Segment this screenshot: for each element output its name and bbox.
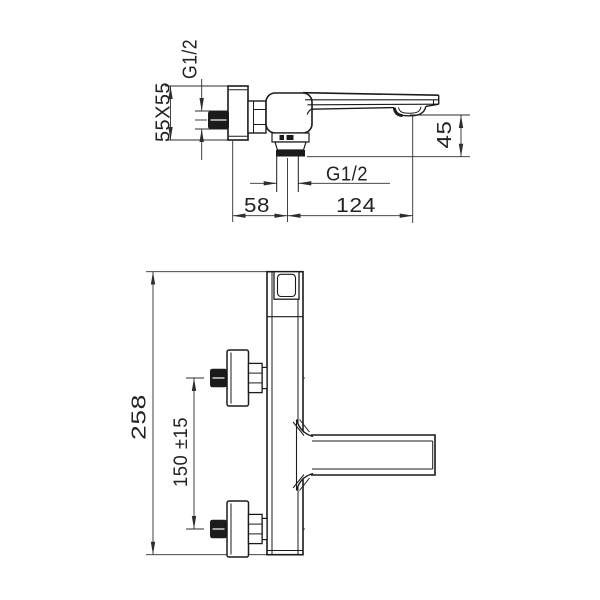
wall-flange-side [228, 86, 248, 140]
side-view: G1/2 55X55 45 G1/2 58 124 [153, 39, 471, 223]
dim-label-overall-length: 258 [129, 394, 151, 440]
faucet-dimension-drawing: G1/2 55X55 45 G1/2 58 124 [0, 0, 600, 600]
dim-label-flange-size: 55X55 [153, 82, 175, 142]
wall-union-upper [210, 350, 267, 406]
technical-drawing-page: G1/2 55X55 45 G1/2 58 124 [0, 0, 600, 600]
spout-front [293, 419, 435, 491]
dim-label-outlet-thread: G1/2 [326, 164, 368, 186]
wall-union-lower [210, 501, 267, 557]
dim-label-wall-to-outlet: 58 [244, 195, 270, 217]
mixer-bar-front [267, 272, 303, 555]
dim-label-union-spacing: 150 ±15 [171, 417, 192, 487]
lever-handle-front [274, 272, 299, 300]
aerator-side [394, 106, 426, 115]
wall-inlet-union-side [208, 111, 229, 129]
dim-label-spout-drop: 45 [434, 121, 456, 149]
front-view: 258 150 ±15 [129, 272, 436, 557]
mounting-nut-side [248, 101, 266, 133]
dim-label-inlet-thread: G1/2 [180, 39, 202, 79]
valve-body-side [266, 93, 312, 133]
dim-label-outlet-to-tip: 124 [336, 195, 376, 217]
side-view-dimensions [165, 79, 470, 223]
